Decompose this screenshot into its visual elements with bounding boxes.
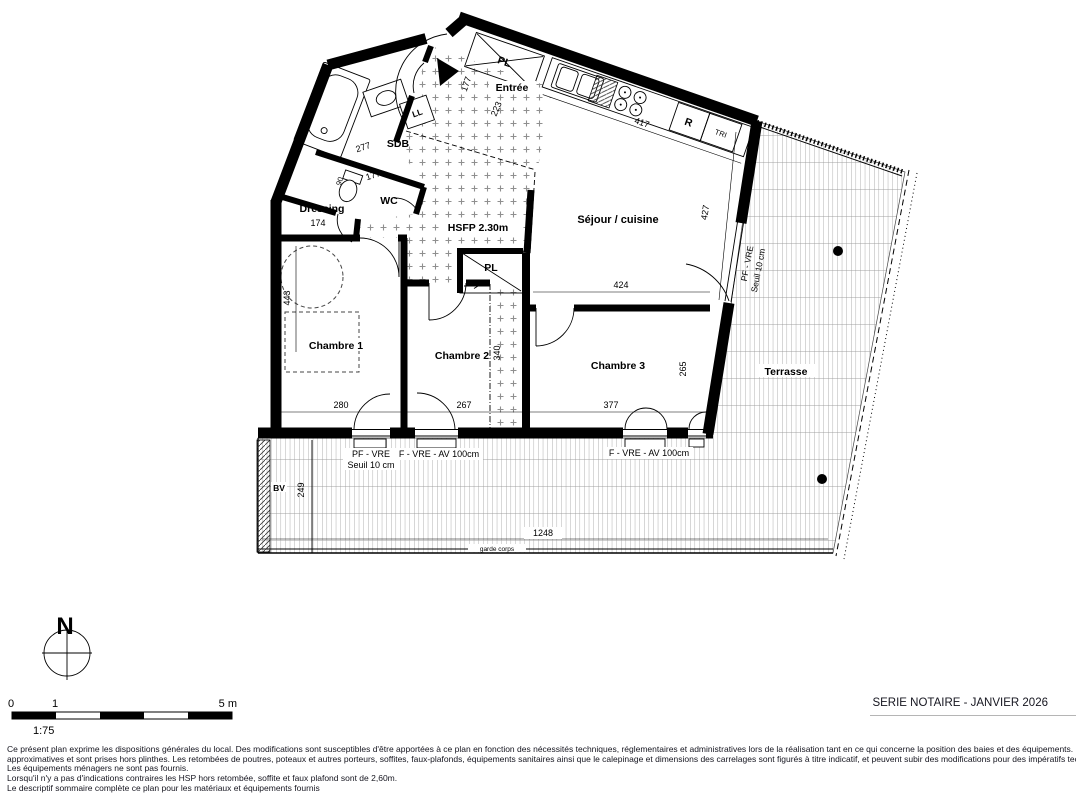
dim-chambre2-267: 267 (456, 400, 471, 410)
bottom-pf-vre-label: PF - VRE (352, 449, 390, 459)
window-sill-4 (689, 439, 704, 447)
terrace-post-bottom (817, 474, 827, 484)
entree-label: Entrée (496, 82, 529, 94)
dim-sejour-424: 424 (613, 280, 628, 290)
scale-tick-0: 0 (8, 698, 14, 710)
dim-chambre3-265: 265 (678, 361, 688, 376)
dressing-label: Dressing (300, 203, 345, 215)
chambre2-label: Chambre 2 (435, 350, 489, 362)
dim-chambre2-340: 340 (492, 345, 502, 360)
dim-chambre1-443: 443 (282, 290, 292, 305)
terrasse-label: Terrasse (764, 366, 807, 378)
f-vre-av100-label-1: F - VRE - AV 100cm (399, 449, 479, 459)
chambre1-label: Chambre 1 (309, 340, 363, 352)
sdb-label: SDB (387, 138, 410, 150)
dim-dressing-174: 174 (310, 218, 325, 228)
floor-plan-drawing: LL PL R TRI 417 PL (0, 0, 1076, 800)
sejour-cuisine-label: Séjour / cuisine (577, 214, 658, 226)
f-vre-av100-label-2: F - VRE - AV 100cm (609, 448, 689, 458)
terrace-post-top (833, 246, 843, 256)
hsfp-label: HSFP 2.30m (448, 222, 509, 234)
dim-terrasse-249: 249 (296, 482, 306, 497)
window-sill-3 (625, 439, 665, 448)
dim-chambre3-377: 377 (603, 400, 618, 410)
window-sill-2 (417, 439, 456, 448)
floor-plan-sheet: LL PL R TRI 417 PL (0, 0, 1076, 800)
scale-tick-1: 1 (52, 698, 58, 710)
scale-ratio: 1:75 (33, 725, 54, 737)
chambre3-label: Chambre 3 (591, 360, 645, 372)
north-compass: N (42, 613, 92, 680)
scale-bar: 0 1 5 m 1:75 (8, 698, 237, 737)
bv-label: BV (273, 483, 285, 493)
window-sill-1 (354, 439, 386, 448)
wc-label: WC (380, 195, 398, 207)
legal-notes: Ce présent plan exprime les dispositions… (7, 745, 1071, 794)
scale-tick-5m: 5 m (219, 698, 237, 710)
title-block-rule (870, 715, 1076, 716)
bv-duct-hatch (257, 440, 270, 552)
legal-line-5: Le descriptif sommaire complète ce plan … (7, 784, 1071, 794)
dim-terrasse-1248: 1248 (533, 528, 553, 538)
garde-corps-label: garde corps (480, 546, 515, 553)
bottom-seuil-label: Seuil 10 cm (347, 460, 394, 470)
north-label: N (56, 613, 73, 640)
dim-chambre1-280: 280 (333, 400, 348, 410)
title-block: SERIE NOTAIRE - JANVIER 2026 (648, 697, 1048, 709)
placard-couloir-label: PL (484, 262, 498, 274)
